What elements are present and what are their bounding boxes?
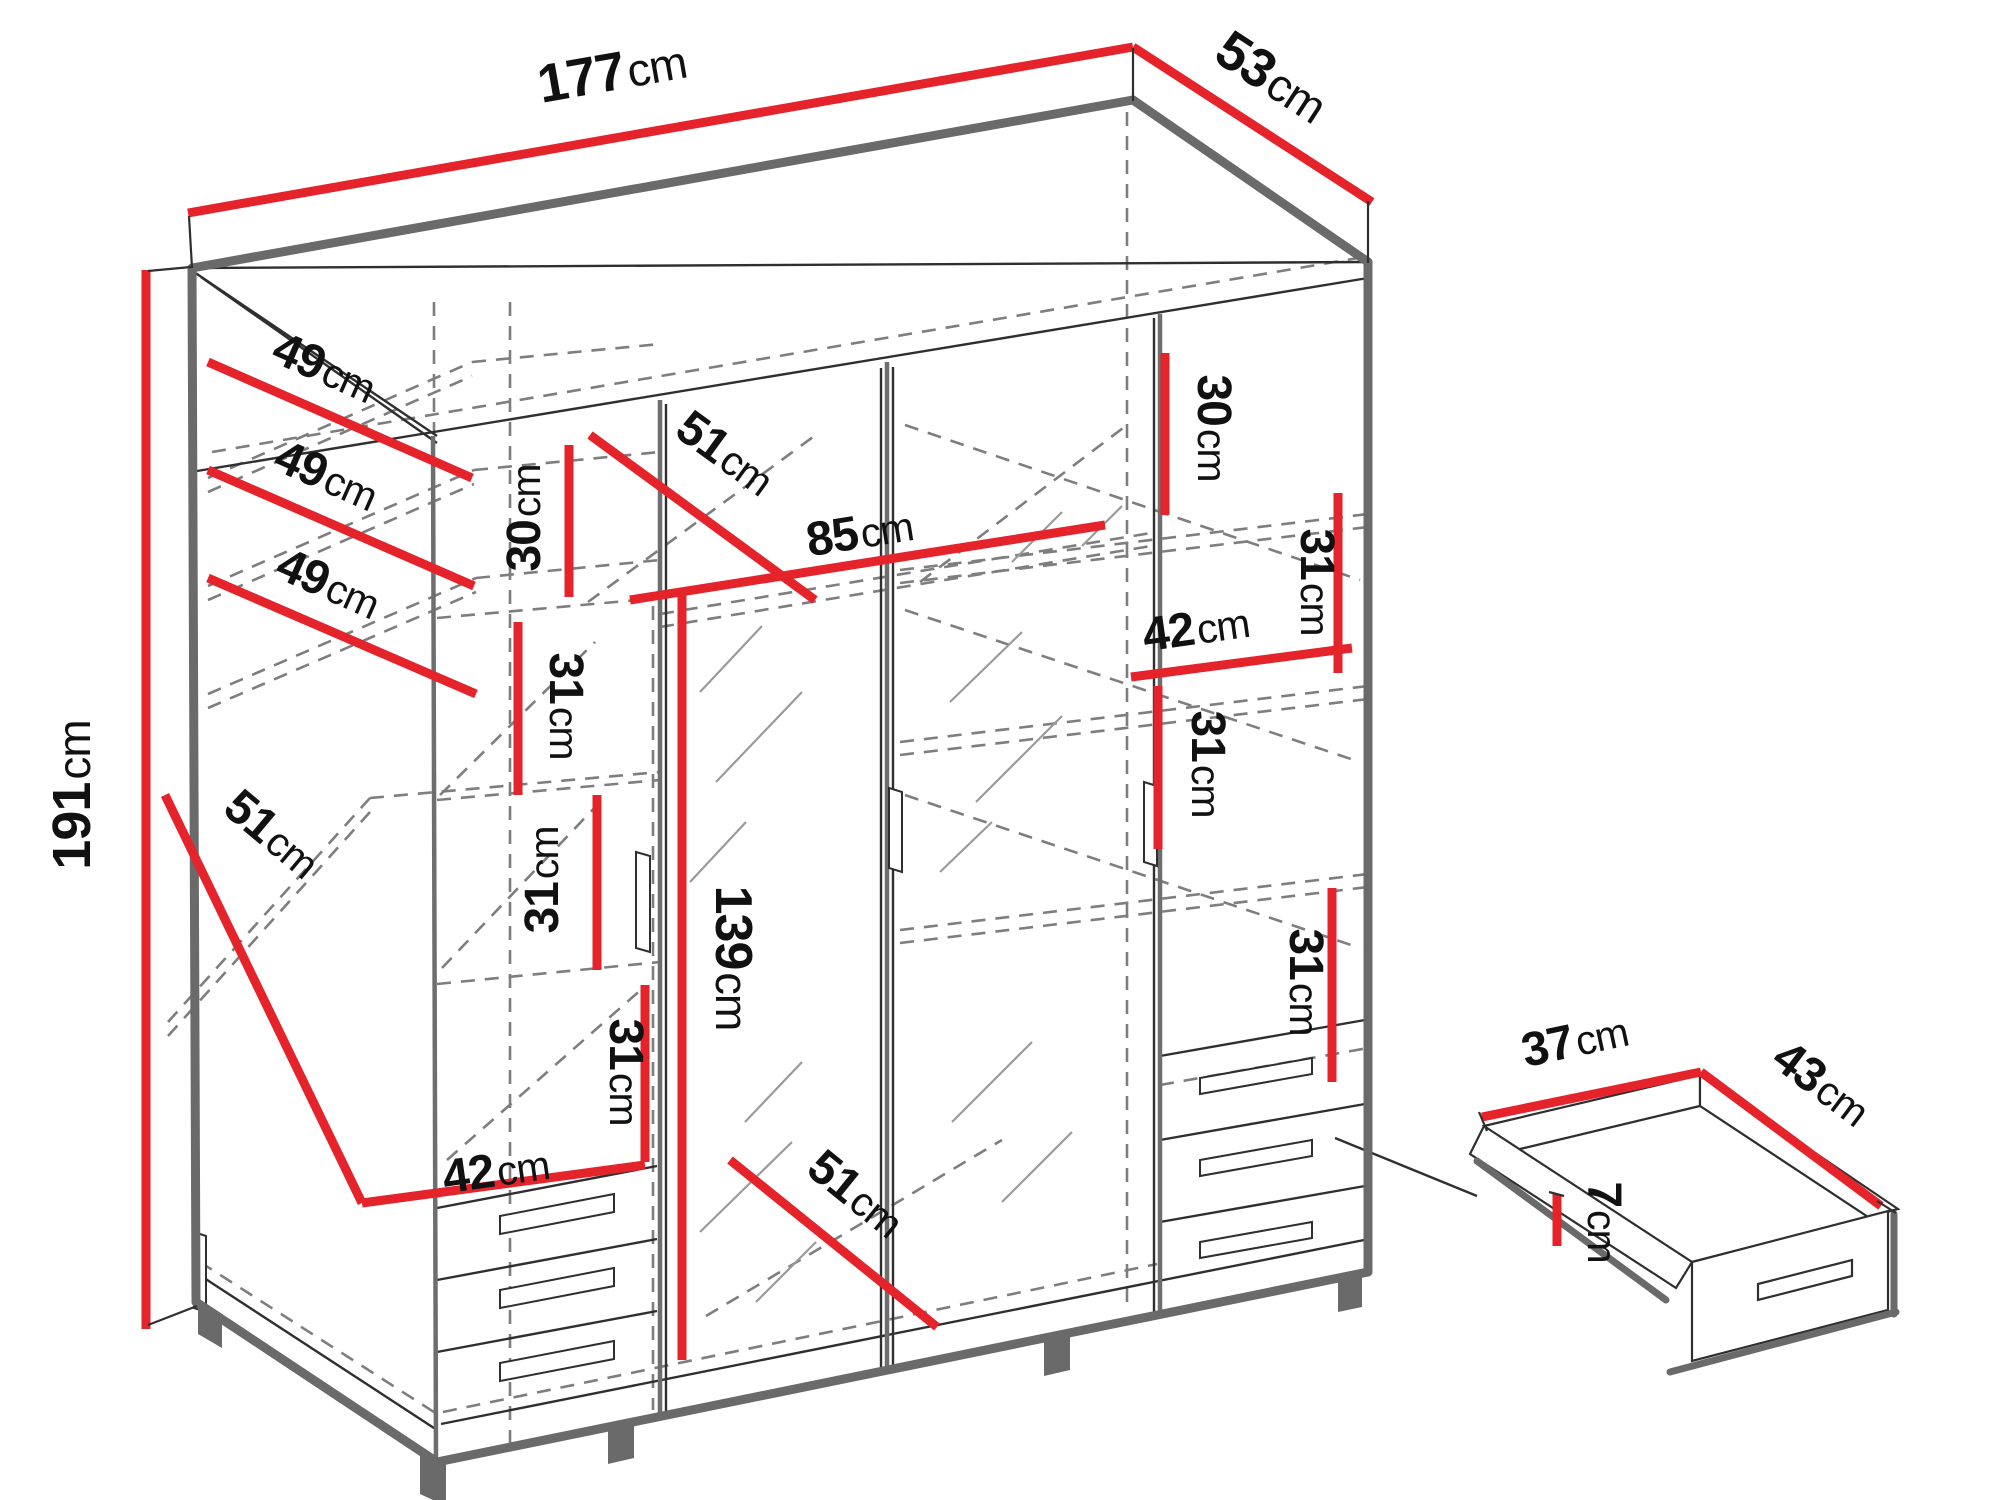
dimension-label-left-h-31c: 31cm [599,1018,652,1125]
dashed-shelf-line [200,1262,437,1414]
dimension-label-left-h-30: 30cm [498,464,551,571]
dimension-label-drawer-w-37: 37cm [1517,1004,1633,1078]
dashed-shelf-line [900,699,1368,755]
dimension-label-left-w-42: 42cm [439,1137,552,1204]
structure-line [437,1311,657,1352]
drawer-handle [500,1194,614,1234]
dimension-label-right-w-42: 42cm [1139,595,1252,662]
dashed-shelf-line [905,795,1360,948]
mirror-hatch-line [950,632,1022,702]
drawer-handle [1200,1058,1312,1094]
dimension-label-shelf-depth-4: 51cm [214,779,330,888]
mirror-hatch-line [1002,1132,1072,1202]
dimension-label-right-h-31c: 31cm [1279,928,1332,1035]
door-division-line [433,436,436,1460]
dashed-shelf-line [437,598,660,618]
dimension-label-left-h-31a: 31cm [539,652,592,759]
mirror-hatch-line [745,1062,802,1122]
dimension-label-shelf-depth-1: 49cm [265,322,384,414]
dashed-shelf-line [900,686,1368,742]
structure-line [441,1240,1364,1424]
dashed-shelf-line [437,962,660,984]
wardrobe-outline [192,268,196,1302]
dimension-label-left-h-31b: 31cm [516,826,569,933]
dimension-label-depth-total: 53cm [1205,19,1339,135]
wardrobe-outline [196,1302,437,1462]
dashed-shelf-line [472,344,660,362]
dimension-label-right-h-31a: 31cm [1290,528,1343,635]
mirror-hatch-line [716,692,802,782]
drawer-handle [500,1341,614,1381]
diagram-canvas: 177cm53cm191cm49cm49cm49cm51cm30cm31cm31… [0,0,2000,1500]
door-handle [889,788,902,872]
dimension-label-right-h-31b: 31cm [1181,710,1234,817]
wardrobe-dimension-diagram: 177cm53cm191cm49cm49cm49cm51cm30cm31cm31… [0,0,2000,1500]
dimension-label-mid-diag-51: 51cm [666,401,784,507]
structure-line [198,1274,437,1430]
mirror-hatch-line [952,1042,1032,1122]
drawer-handle [500,1268,614,1308]
door-handle [636,852,650,952]
dimension-label-drawer-h-7: 7cm [1577,1181,1630,1262]
mirror-hatch-line [756,1242,816,1302]
mirror-hatch-line [700,1142,792,1232]
dimension-tick [189,216,192,268]
mirror-hatch-line [700,626,762,692]
mirror-hatch-line [976,716,1062,802]
drawer-handle [1200,1140,1312,1176]
dimension-label-right-h-30: 30cm [1187,374,1240,481]
structure-line [1160,1186,1365,1222]
dimension-label-mirror-h-139: 139cm [704,886,762,1031]
mirror-hatch-line [690,822,746,882]
dimension-label-height-total: 191cm [42,720,102,869]
dimension-tick [148,1306,197,1325]
dashed-shelf-line [212,258,1358,452]
dimension-tick [148,267,191,271]
dimension-label-drawer-d-43: 43cm [1763,1030,1880,1137]
dimension-label-width-total: 177cm [533,30,691,115]
mirror-hatch-line [940,822,992,872]
structure-line [1160,1104,1365,1140]
structure-line [437,1239,657,1280]
dashed-shelf-line [905,610,1360,762]
dashed-shelf-line [900,874,1368,930]
